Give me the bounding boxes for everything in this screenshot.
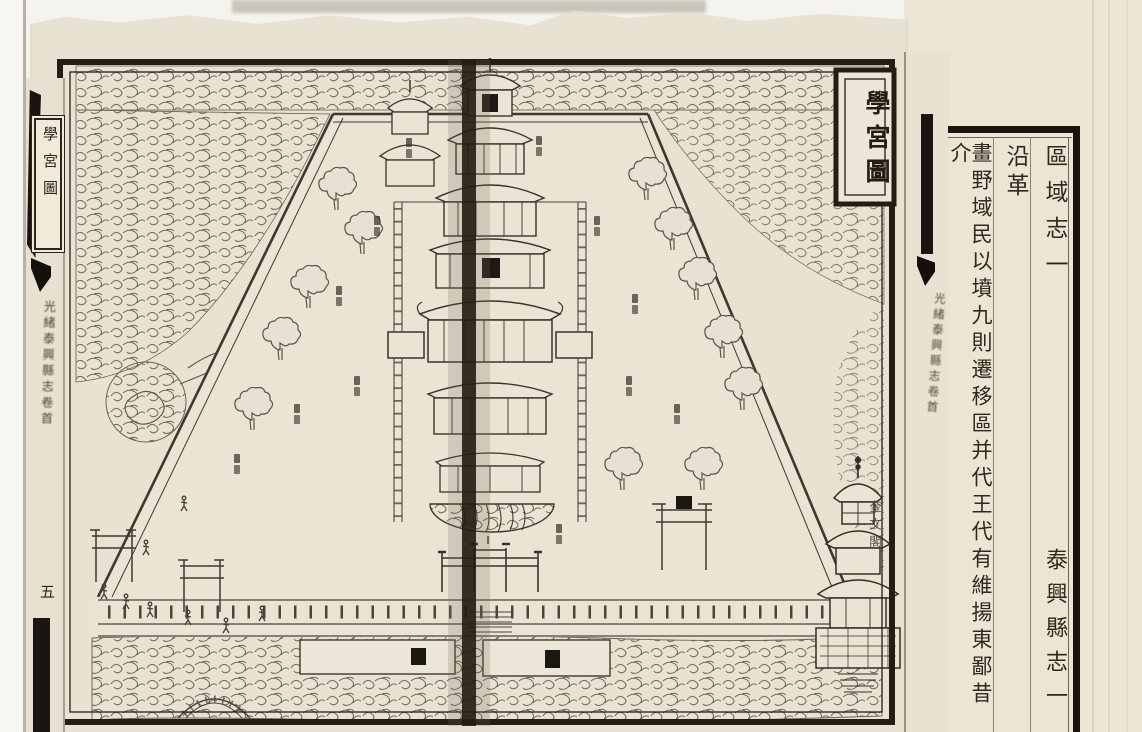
spine-title-plate: 學宮圖 xyxy=(34,118,62,250)
text-page-top-rule xyxy=(948,137,1072,138)
spine-fold-bar xyxy=(921,114,933,254)
spine-fishtail-mark xyxy=(917,256,935,286)
background-margin xyxy=(0,0,23,732)
column-separator xyxy=(993,137,994,732)
ink-pond xyxy=(106,362,186,442)
book-top-shadow xyxy=(232,0,706,13)
text-page-inner-rule xyxy=(1068,137,1069,732)
map-spread: 學宮圖 奎文閣 xyxy=(38,52,906,732)
spine-fold-bar xyxy=(33,618,50,732)
textpage-section-title: 區域志一 xyxy=(1034,144,1066,288)
page-stack-edge xyxy=(1108,0,1110,732)
textpage-body-column: 畫野域民以墳九則遷移區并代王代有維揚東鄙昔介 xyxy=(955,142,991,732)
page-gutter xyxy=(448,60,490,726)
map-title-plate: 學宮圖 xyxy=(850,82,888,200)
book-scan: 學宮圖 奎文閣 學宮圖 光緒泰興縣志卷首 五 光緒泰興縣志卷首 區域志一 泰興縣… xyxy=(0,0,1142,732)
column-separator xyxy=(1030,137,1031,732)
textpage-chapter-heading: 沿革 xyxy=(997,144,1027,202)
left-spine-strip: 學宮圖 光緒泰興縣志卷首 五 xyxy=(26,78,65,732)
page-stack-edge xyxy=(1126,0,1128,732)
textpage-volume-footer: 泰興縣志一 xyxy=(1036,548,1066,718)
text-page-right-border xyxy=(1073,126,1080,732)
spine-title-text: 學宮圖 xyxy=(40,126,56,207)
center-spine-strip: 光緒泰興縣志卷首 xyxy=(904,52,950,732)
page-stack-edge xyxy=(1092,0,1094,732)
spine-page-number: 五 xyxy=(37,584,53,599)
spine-caption: 光緒泰興縣志卷首 xyxy=(34,300,55,570)
spine-fishtail-mark xyxy=(31,258,51,292)
xuegong-map-illustration xyxy=(38,52,906,732)
spine-caption: 光緒泰興縣志卷首 xyxy=(913,292,945,562)
text-page: 區域志一 泰興縣志一 沿革 畫野域民以墳九則遷移區并代王代有維揚東鄙昔介 xyxy=(948,120,1086,732)
kuiwen-pavilion-label: 奎文閣 xyxy=(864,500,880,572)
text-page-top-border xyxy=(948,126,1078,133)
